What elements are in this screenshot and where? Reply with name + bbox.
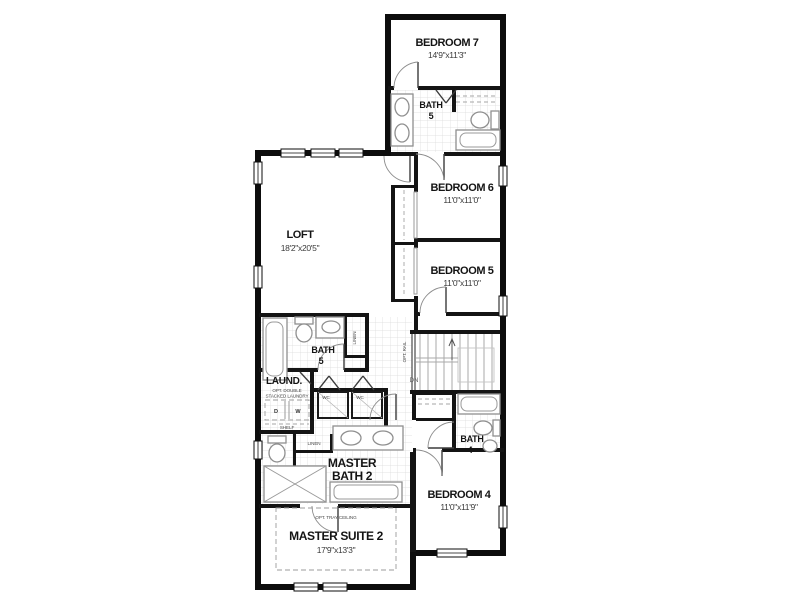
svg-text:STACKED LAUNDRY: STACKED LAUNDRY bbox=[265, 394, 308, 399]
door-bedroom6 bbox=[416, 154, 444, 180]
window bbox=[499, 166, 507, 186]
svg-text:5: 5 bbox=[429, 111, 434, 121]
svg-text:BATH: BATH bbox=[311, 345, 334, 355]
svg-text:D: D bbox=[274, 409, 278, 415]
linen-horizontal-label: LINEN bbox=[307, 441, 320, 446]
vanity-bath5-lower bbox=[316, 317, 344, 338]
bathtub-master-bath bbox=[330, 482, 402, 502]
window bbox=[339, 149, 363, 157]
bathtub-bath5-lower bbox=[263, 318, 287, 380]
bedroom6-label: BEDROOM 6 11'0"x11'0" bbox=[430, 182, 493, 205]
svg-text:LAUND.: LAUND. bbox=[266, 376, 302, 387]
bedroom5-label: BEDROOM 5 11'0"x11'0" bbox=[430, 265, 493, 288]
shower-master-bath bbox=[264, 466, 326, 502]
sink-bath4 bbox=[483, 440, 497, 452]
opt-tray-ceiling-note: OPT. TRAY CEILING bbox=[315, 515, 357, 520]
master-suite-label: OPT. TRAY CEILING MASTER SUITE 2 17'9"x1… bbox=[289, 515, 383, 555]
svg-text:MASTER SUITE 2: MASTER SUITE 2 bbox=[289, 529, 383, 543]
svg-text:BEDROOM 6: BEDROOM 6 bbox=[430, 182, 493, 194]
toilet-master-bath bbox=[268, 436, 286, 462]
svg-text:OPT. DOUBLE: OPT. DOUBLE bbox=[272, 388, 301, 393]
window bbox=[499, 296, 507, 316]
door-bedroom4 bbox=[416, 450, 442, 476]
toilet-bath5-lower bbox=[295, 317, 313, 342]
stairs-down-label: DN bbox=[410, 378, 419, 384]
svg-text:LOFT: LOFT bbox=[286, 229, 314, 241]
linen-vertical-label: LINEN bbox=[352, 331, 357, 344]
svg-text:11'0"x11'0": 11'0"x11'0" bbox=[443, 278, 481, 288]
svg-text:BEDROOM 4: BEDROOM 4 bbox=[427, 489, 491, 501]
svg-text:BATH 2: BATH 2 bbox=[332, 469, 373, 483]
floor-plan-drawing: DN OPT. RAIL BEDROOM 7 bbox=[0, 0, 800, 600]
floor-plan: DN OPT. RAIL BEDROOM 7 bbox=[0, 0, 800, 600]
door-bedroom5 bbox=[420, 287, 446, 313]
svg-text:BEDROOM 7: BEDROOM 7 bbox=[415, 37, 478, 49]
wc-right-label: WC bbox=[356, 395, 364, 400]
window bbox=[254, 266, 262, 288]
wc-left-label: WC bbox=[322, 395, 330, 400]
window bbox=[254, 441, 262, 459]
svg-text:BATH: BATH bbox=[460, 434, 483, 444]
bathtub-bath4 bbox=[458, 394, 500, 414]
stairs-rail-note: OPT. RAIL bbox=[402, 341, 407, 362]
svg-text:SHELF: SHELF bbox=[280, 425, 295, 430]
svg-text:11'0"x11'0": 11'0"x11'0" bbox=[443, 195, 481, 205]
bathtub-bath5-upper bbox=[456, 130, 500, 150]
window bbox=[437, 549, 467, 557]
stair-direction-arrow bbox=[449, 339, 455, 360]
bedroom4-label: BEDROOM 4 11'0"x11'9" bbox=[427, 489, 491, 512]
master-bath-label: MASTER BATH 2 bbox=[328, 456, 377, 483]
bedroom7-label: BEDROOM 7 14'9"x11'3" bbox=[415, 37, 478, 60]
window bbox=[281, 149, 305, 157]
vanity-master-bath bbox=[333, 426, 403, 450]
stairs: DN OPT. RAIL bbox=[402, 334, 494, 390]
svg-text:17'9"x13'3": 17'9"x13'3" bbox=[317, 545, 356, 555]
window bbox=[323, 583, 347, 591]
window bbox=[311, 149, 335, 157]
svg-text:BEDROOM 5: BEDROOM 5 bbox=[430, 265, 493, 277]
svg-text:W: W bbox=[295, 409, 301, 415]
svg-text:5: 5 bbox=[319, 356, 324, 366]
svg-text:11'0"x11'9": 11'0"x11'9" bbox=[440, 502, 478, 512]
loft-label: LOFT 18'2"x20'5" bbox=[281, 229, 320, 253]
door-bedroom7 bbox=[394, 62, 418, 88]
door-bath4 bbox=[428, 422, 454, 448]
svg-text:18'2"x20'5": 18'2"x20'5" bbox=[281, 243, 320, 253]
svg-text:MASTER: MASTER bbox=[328, 456, 377, 470]
svg-text:BATH: BATH bbox=[419, 100, 442, 110]
window bbox=[499, 506, 507, 528]
toilet-bath5-upper bbox=[471, 111, 499, 129]
svg-text:4: 4 bbox=[468, 445, 473, 455]
window bbox=[254, 162, 262, 184]
svg-text:14'9"x11'3": 14'9"x11'3" bbox=[428, 50, 466, 60]
window bbox=[294, 583, 318, 591]
door-loft bbox=[384, 156, 410, 182]
vanity-bath5-upper bbox=[391, 94, 413, 146]
